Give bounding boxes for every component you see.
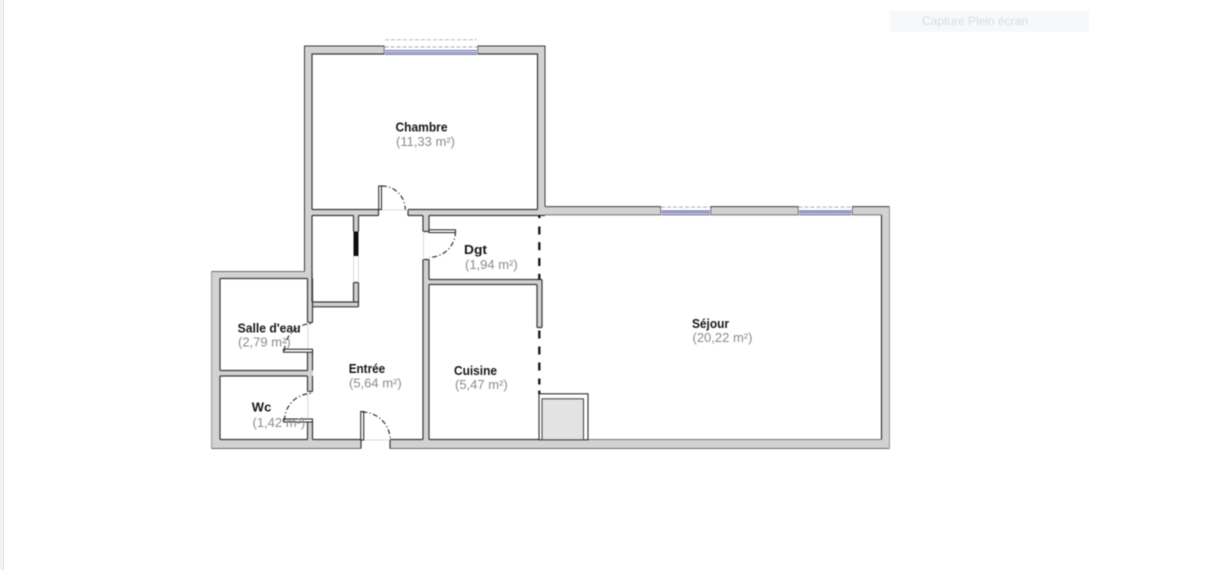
svg-text:Wc: Wc [252,400,271,415]
svg-text:Séjour: Séjour [692,316,729,331]
svg-text:Dgt: Dgt [464,242,488,257]
svg-text:(2,79 m²): (2,79 m²) [238,335,291,350]
svg-text:(5,47 m²): (5,47 m²) [455,377,508,392]
svg-text:Chambre: Chambre [396,120,448,135]
svg-text:(11,33 m²): (11,33 m²) [396,134,455,149]
svg-text:(1,42 m²): (1,42 m²) [253,415,306,430]
svg-text:(1,94 m²): (1,94 m²) [465,257,518,272]
svg-text:Entrée: Entrée [349,361,386,376]
svg-text:Salle d'eau: Salle d'eau [238,321,301,336]
svg-text:(20,22 m²): (20,22 m²) [693,330,753,345]
svg-text:Cuisine: Cuisine [454,363,497,378]
svg-text:(5,64 m²): (5,64 m²) [349,376,402,391]
